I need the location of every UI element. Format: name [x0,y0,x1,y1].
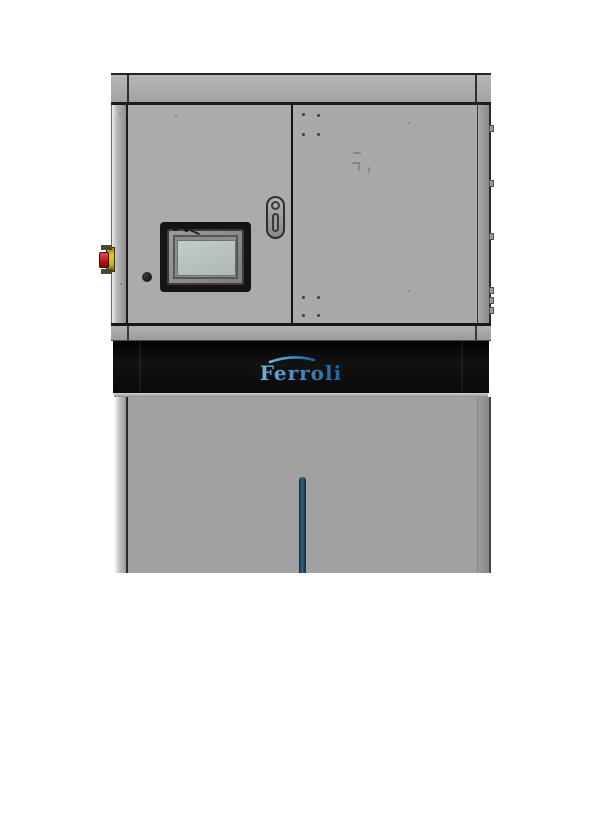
hinge-mark [489,125,494,132]
screw-dot [302,314,305,317]
top-rail [111,73,491,105]
faint-screw-dot [175,115,177,117]
mid-rail-seam-left [127,326,129,340]
latch-ring-icon [271,201,280,210]
hmi-led-icon [173,226,178,231]
lower-left-side-panel [115,397,128,573]
etched-mark [353,152,361,154]
ferroli-logo-icon: Ferroli [246,353,356,387]
top-rail-seam-left [127,75,129,102]
screw-dot [302,133,305,136]
lower-right-side-panel [478,397,491,573]
faint-screw-dot [119,113,121,115]
top-rail-seam-right [475,75,477,102]
faint-screw-dot [120,283,122,285]
etched-mark [358,164,360,171]
machine-cabinet: Ferroli [111,73,491,573]
etched-mark [368,167,370,173]
door-latch-handle [266,196,285,239]
hinge-mark [489,307,494,314]
brand-logo: Ferroli [246,353,356,387]
estop-cap [101,269,112,274]
round-button [142,272,152,282]
faint-screw-dot [408,122,410,124]
latch-bar-icon [272,213,279,232]
hinge-mark [489,233,494,240]
product-image-canvas: Ferroli [0,0,600,840]
screw-dot [302,296,305,299]
estop-cap [101,245,112,250]
screw-dot [317,133,320,136]
estop-red-button-icon [99,252,109,268]
handle-groove [299,477,306,573]
hinge-mark [489,297,494,304]
brand-wordmark: Ferroli [260,361,342,385]
screw-dot [317,114,320,117]
hinge-mark [489,180,494,187]
left-side-panel [111,105,128,323]
screw-dot [317,314,320,317]
mid-rail-seam-right [475,326,477,340]
band-seam [461,341,463,393]
mid-rail [111,323,491,341]
band-seam [139,341,141,393]
screw-dot [317,296,320,299]
right-door [293,105,477,323]
hmi-touch-panel [160,222,251,292]
screw-dot [302,113,305,116]
faint-screw-dot [408,290,410,292]
hmi-screen [177,240,236,276]
lower-panel [115,397,491,573]
hinge-mark [489,287,494,294]
emergency-stop-button [99,245,115,274]
